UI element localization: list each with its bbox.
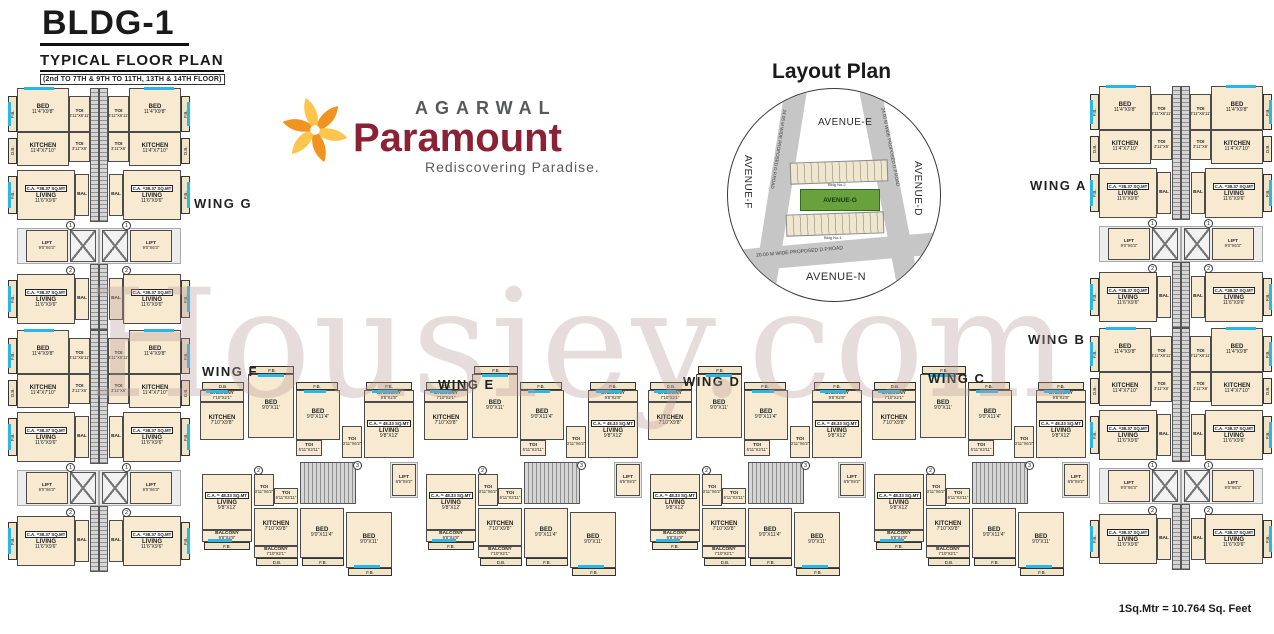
duct-strip: F.B. [1020, 568, 1064, 576]
room-bed: BED9'0"X11'4" [972, 508, 1016, 558]
window-mark [976, 390, 998, 393]
room-lift: LIFT9'0"X6'3" [1108, 228, 1150, 260]
room-living: C.A. =38.37 SQ.MTLIVING11'6"X9'6" [1205, 272, 1263, 322]
room-toi: TOI6'11"X3'11" [274, 488, 298, 504]
flat-number: 1 [122, 463, 131, 472]
core-stairh [90, 506, 99, 572]
room-living: C.A. = 48.33 SQ.MTLIVING9'8"X12' [1036, 402, 1086, 458]
window-mark [187, 344, 190, 368]
core-stairh [99, 264, 108, 330]
flat-number: 2 [702, 466, 711, 475]
flat-number: 1 [122, 221, 131, 230]
room-bal: BAL [75, 416, 89, 458]
room-toi: TOI3'11"X6'2" [478, 474, 498, 506]
duct-strip: F.B. [296, 382, 338, 390]
layout-plan-title: Layout Plan [772, 60, 891, 84]
window-mark [1090, 422, 1093, 448]
room-kitchen: KITCHEN7'10"X9'8" [872, 402, 916, 440]
duct-strip: D.B. [1090, 378, 1099, 404]
duct-strip: F.B. [744, 382, 786, 390]
flat-number: 3 [1025, 461, 1034, 470]
flat-number: 3 [801, 461, 810, 470]
swirl-logo-icon [283, 98, 347, 167]
duct-strip: F.B. [590, 382, 636, 390]
room-kitchen: KITCHEN7'10"X9'8" [254, 508, 298, 546]
room-living: C.A. =38.37 SQ.MTLIVING11'6"X9'6" [17, 274, 75, 324]
room-bed: BED9'0"X11' [1018, 512, 1064, 568]
room-bed: BED9'0"X11' [248, 374, 294, 438]
window-mark [1026, 565, 1052, 568]
room-lift: LIFT9'0"X6'3" [1108, 470, 1150, 502]
room-toi: TOI3'11"X6' [69, 374, 90, 404]
room-toi: TOI6'11"X3'11" [968, 440, 994, 456]
room-bed: BED9'0"X11'4" [744, 390, 788, 440]
room-kitchen: KITCHEN11'4"X7'10" [129, 374, 181, 408]
room-bed: BED11'4"X9'8" [1211, 86, 1263, 130]
wing-label-wing-c: WING C [928, 371, 985, 386]
room-lift: LIFT6'5"X9'2" [1064, 464, 1088, 496]
room-kitchen: KITCHEN11'4"X7'10" [1211, 130, 1263, 164]
flat-number: 1 [1148, 219, 1157, 228]
room-living: C.A. =38.37 SQ.MTLIVING11'6"X9'6" [123, 274, 181, 324]
room-living: C.A. =38.37 SQ.MTLIVING11'6"X9'6" [17, 170, 75, 220]
window-mark [1269, 422, 1272, 448]
window-mark [24, 87, 54, 90]
window-mark [596, 390, 622, 393]
room-toi: TOI3'11"X6'11" [69, 96, 90, 132]
room-living: C.A. = 48.33 SQ.MTLIVING9'8"X12' [588, 402, 638, 458]
room-bal: BAL [1191, 276, 1205, 318]
core-stairv [748, 462, 804, 504]
room-toi: TOI3'11"X6'11" [1151, 336, 1172, 372]
flat-number: 2 [66, 508, 75, 517]
room-kitchen: KITCHEN7'10"X9'8" [200, 402, 244, 440]
duct-strip: D.B. [1090, 136, 1099, 162]
window-mark [1090, 284, 1093, 310]
window-mark [24, 329, 54, 332]
room-bed: BED11'4"X9'8" [1099, 328, 1151, 372]
room-bal: BAL [109, 416, 123, 458]
flat-number: 1 [66, 463, 75, 472]
room-bal: BAL [109, 278, 123, 320]
window-mark [304, 390, 326, 393]
window-mark [1269, 526, 1272, 552]
room-lift: LIFT9'0"X6'3" [1212, 228, 1254, 260]
room-balcony: BALCONY7'10"X2'1" [254, 546, 298, 558]
room-bed: BED9'0"X11' [794, 512, 840, 568]
window-mark [878, 390, 900, 393]
brand-product: Paramount [353, 119, 600, 157]
duct-strip: F.B. [474, 366, 518, 374]
window-mark [8, 424, 11, 450]
duct-strip: F.B. [974, 558, 1016, 566]
room-bed: BED9'0"X11'4" [300, 508, 344, 558]
room-bal: BAL [1191, 518, 1205, 560]
room-toi: TOI6'11"X3'11" [520, 440, 546, 456]
room-kitchen: KITCHEN11'4"X7'10" [17, 374, 69, 408]
room-living: C.A. =38.37 SQ.MTLIVING11'6"X9'6" [1099, 272, 1157, 322]
flat-number: 1 [1148, 461, 1157, 470]
flat-number: 2 [122, 508, 131, 517]
room-bal: BAL [1157, 276, 1171, 318]
window-mark [654, 390, 676, 393]
room-living: C.A. =38.37 SQ.MTLIVING11'6"X9'6" [123, 516, 181, 566]
flat-number: 3 [353, 461, 362, 470]
room-toi: TOI6'11"X3'11" [744, 440, 770, 456]
room-bed: BED11'4"X9'8" [129, 88, 181, 132]
room-kitchen: KITCHEN11'4"X7'10" [129, 132, 181, 166]
core-stairh [90, 88, 99, 222]
scale-note: 1Sq.Mtr = 10.764 Sq. Feet [1100, 603, 1270, 615]
room-toi: TOI3'11"X6'11" [108, 338, 129, 374]
window-mark [1226, 85, 1256, 88]
flat-number: 1 [66, 221, 75, 230]
wing-label-wing-d: WING D [683, 374, 740, 389]
site-plot-label: AVENUE-G [823, 197, 857, 204]
duct-strip: F.B. [572, 568, 616, 576]
window-mark [8, 528, 11, 554]
window-mark [1090, 180, 1093, 206]
duct-strip: F.B. [520, 382, 562, 390]
room-kitchen: KITCHEN7'10"X9'8" [926, 508, 970, 546]
duct-strip: F.B. [302, 558, 344, 566]
flat-number: 2 [122, 266, 131, 275]
core-stairh [1172, 262, 1181, 328]
window-mark [187, 286, 190, 312]
duct-strip: F.B. [348, 568, 392, 576]
layout-bldg-2 [790, 159, 889, 184]
core-stairh [90, 330, 99, 464]
window-mark [1044, 390, 1070, 393]
site-plot: AVENUE-G [800, 189, 880, 211]
room-bed: BED9'0"X11'4" [968, 390, 1012, 440]
window-mark [1269, 180, 1272, 206]
duct-strip: F.B. [428, 542, 474, 550]
window-mark [1090, 100, 1093, 124]
room-balcony: BALCONY7'10"X2'1" [926, 546, 970, 558]
room-living: C.A. =38.37 SQ.MTLIVING11'6"X9'6" [1099, 514, 1157, 564]
room-kitchen: KITCHEN11'4"X7'10" [17, 132, 69, 166]
room-kitchen: KITCHEN7'10"X9'8" [478, 508, 522, 546]
room-toi: TOI6'11"X3'11" [296, 440, 322, 456]
layout-bldg-1 [786, 211, 885, 236]
room-living: C.A. =38.37 SQ.MTLIVING11'6"X9'6" [123, 412, 181, 462]
duct-strip: F.B. [876, 542, 922, 550]
room-living: C.A. = 48.33 SQ.MTLIVING9'8"X12' [650, 474, 700, 530]
core-xbox [102, 230, 128, 262]
room-toi: TOI3'11"X6'2" [342, 426, 362, 458]
duct-strip: F.B. [750, 558, 792, 566]
room-bed: BED9'0"X11'4" [748, 508, 792, 558]
window-mark [8, 344, 11, 368]
core-stairh [1172, 86, 1181, 220]
duct-strip: F.B. [204, 542, 250, 550]
core-xbox [1184, 470, 1210, 502]
window-mark [1226, 327, 1256, 330]
duct-strip: F.B. [526, 558, 568, 566]
window-mark [206, 390, 228, 393]
room-toi: TOI6'11"X3'11" [946, 488, 970, 504]
core-xbox [1152, 470, 1178, 502]
wing-label-wing-g: WING G [194, 196, 252, 211]
room-toi: TOI6'11"X3'11" [722, 488, 746, 504]
room-living: C.A. = 48.33 SQ.MTLIVING9'8"X12' [426, 474, 476, 530]
room-toi: TOI3'11"X6' [69, 132, 90, 162]
core-stairh [99, 88, 108, 222]
window-mark [208, 539, 232, 542]
room-lift: LIFT6'5"X9'2" [616, 464, 640, 496]
window-mark [8, 102, 11, 126]
floor-plan: F.B.D.B.F.B.F.B.BED11'4"X9'8"TOI3'11"X6'… [0, 0, 1274, 634]
window-mark [1269, 342, 1272, 366]
room-toi: TOI3'11"X6'2" [254, 474, 274, 506]
room-toi: TOI3'11"X6' [1151, 372, 1172, 402]
room-bal: BAL [75, 174, 89, 216]
room-living: C.A. = 48.33 SQ.MTLIVING9'8"X12' [364, 402, 414, 458]
layout-plan-map: 24.05 M WIDE PROPOSED D.P.ROAD 24.00 M W… [727, 88, 941, 302]
room-lift: LIFT6'5"X9'2" [392, 464, 416, 496]
avenue-f-label: AVENUE-F [742, 155, 753, 209]
window-mark [187, 424, 190, 450]
core-stairh [1181, 262, 1190, 328]
avenue-n-label: AVENUE-N [806, 271, 866, 283]
wing-label-wing-b: WING B [1028, 332, 1085, 347]
room-bal: BAL [1191, 414, 1205, 456]
room-lift: LIFT9'0"X6'3" [26, 230, 68, 262]
flat-number: 2 [66, 266, 75, 275]
duct-strip: D.B. [181, 380, 190, 406]
core-xbox [102, 472, 128, 504]
brand-tagline: Rediscovering Paradise. [425, 159, 600, 175]
room-toi: TOI3'11"X6' [1190, 130, 1211, 160]
window-mark [8, 286, 11, 312]
room-toi: TOI3'11"X6' [1190, 372, 1211, 402]
room-living: C.A. =38.37 SQ.MTLIVING11'6"X9'6" [1099, 168, 1157, 218]
duct-strip: D.B. [202, 382, 244, 390]
room-kitchen: KITCHEN7'10"X9'8" [702, 508, 746, 546]
room-kitchen: KITCHEN11'4"X7'10" [1211, 372, 1263, 406]
duct-strip: F.B. [652, 542, 698, 550]
flat-number: 2 [1148, 264, 1157, 273]
room-toi: TOI3'11"X6'11" [108, 96, 129, 132]
room-toi: TOI3'11"X6'11" [1190, 94, 1211, 130]
room-toi: TOI3'11"X6'2" [702, 474, 722, 506]
window-mark [752, 390, 774, 393]
room-bed: BED9'0"X11'4" [524, 508, 568, 558]
core-stairh [1181, 504, 1190, 570]
window-mark [187, 102, 190, 126]
layout-bldg-2-label: Bldg No.2 [828, 182, 846, 187]
core-xbox [1184, 228, 1210, 260]
flat-number: 2 [254, 466, 263, 475]
core-stairh [90, 264, 99, 330]
room-bed: BED9'0"X11'4" [520, 390, 564, 440]
flat-number: 1 [1204, 461, 1213, 470]
room-bed: BED11'4"X9'8" [17, 88, 69, 132]
room-bed: BED9'0"X11' [570, 512, 616, 568]
duct-strip: D.B. [181, 138, 190, 164]
avenue-e-label: AVENUE-E [818, 117, 872, 128]
window-mark [187, 528, 190, 554]
floors-note: (2nd TO 7TH & 9TH TO 11TH, 13TH & 14TH F… [40, 74, 225, 85]
room-kitchen: KITCHEN11'4"X7'10" [1099, 130, 1151, 164]
layout-bldg-1-label: Bldg No.1 [824, 235, 842, 240]
window-mark [1106, 85, 1136, 88]
flat-number: 2 [1148, 506, 1157, 515]
duct-strip: D.B. [1263, 378, 1272, 404]
room-living: C.A. =38.37 SQ.MTLIVING11'6"X9'6" [1099, 410, 1157, 460]
window-mark [578, 565, 604, 568]
duct-strip: F.B. [1038, 382, 1084, 390]
room-bed: BED9'0"X11' [346, 512, 392, 568]
window-mark [880, 539, 904, 542]
duct-strip: D.B. [1263, 136, 1272, 162]
room-living: C.A. =38.37 SQ.MTLIVING11'6"X9'6" [1205, 410, 1263, 460]
room-lift: LIFT6'5"X9'2" [840, 464, 864, 496]
core-stairh [99, 330, 108, 464]
room-toi: TOI3'11"X6'2" [926, 474, 946, 506]
avenue-d-label: AVENUE-D [912, 161, 923, 216]
core-stairh [1181, 86, 1190, 220]
window-mark [820, 390, 846, 393]
duct-strip: D.B. [8, 380, 17, 406]
core-stairh [1172, 504, 1181, 570]
duct-strip: D.B. [704, 558, 746, 566]
room-lift: LIFT9'0"X6'3" [26, 472, 68, 504]
core-stairv [972, 462, 1028, 504]
plan-title: TYPICAL FLOOR PLAN [40, 52, 224, 72]
duct-strip: F.B. [796, 568, 840, 576]
room-lift: LIFT9'0"X6'3" [130, 472, 172, 504]
room-bal: BAL [109, 520, 123, 562]
room-bal: BAL [75, 520, 89, 562]
room-bal: BAL [1157, 172, 1171, 214]
room-bed: BED11'4"X9'8" [1099, 86, 1151, 130]
wing-label-wing-f: WING F [202, 364, 258, 379]
room-toi: TOI3'11"X6'2" [566, 426, 586, 458]
room-lift: LIFT9'0"X6'3" [1212, 470, 1254, 502]
core-stairh [1172, 328, 1181, 462]
window-mark [528, 390, 550, 393]
window-mark [8, 182, 11, 208]
room-living: C.A. =38.37 SQ.MTLIVING11'6"X9'6" [1205, 514, 1263, 564]
wing-label-wing-e: WING E [438, 377, 495, 392]
room-bal: BAL [75, 278, 89, 320]
room-bal: BAL [109, 174, 123, 216]
duct-strip: F.B. [366, 382, 412, 390]
room-living: C.A. = 48.33 SQ.MTLIVING9'8"X12' [812, 402, 862, 458]
core-xbox [70, 230, 96, 262]
flat-number: 2 [1204, 264, 1213, 273]
window-mark [656, 539, 680, 542]
core-xbox [1152, 228, 1178, 260]
brand-logo: AGARWAL Paramount Rediscovering Paradise… [283, 98, 600, 175]
window-mark [354, 565, 380, 568]
room-bal: BAL [1191, 172, 1205, 214]
core-stairv [524, 462, 580, 504]
window-mark [432, 539, 456, 542]
room-living: C.A. =38.37 SQ.MTLIVING11'6"X9'6" [17, 412, 75, 462]
window-mark [1106, 327, 1136, 330]
flat-number: 2 [478, 466, 487, 475]
building-title: BLDG-1 [40, 6, 189, 46]
window-mark [1269, 100, 1272, 124]
window-mark [144, 329, 174, 332]
flat-number: 2 [1204, 506, 1213, 515]
core-stairh [99, 506, 108, 572]
room-bal: BAL [1157, 518, 1171, 560]
duct-strip: D.B. [928, 558, 970, 566]
room-bed: BED9'0"X11'4" [296, 390, 340, 440]
room-kitchen: KITCHEN7'10"X9'8" [424, 402, 468, 440]
window-mark [258, 374, 284, 377]
room-living: C.A. =38.37 SQ.MTLIVING11'6"X9'6" [123, 170, 181, 220]
room-living: C.A. = 48.33 SQ.MTLIVING9'8"X12' [202, 474, 252, 530]
duct-strip: D.B. [480, 558, 522, 566]
wing-label-wing-a: WING A [1030, 178, 1087, 193]
core-stairv [300, 462, 356, 504]
room-balcony: BALCONY7'10"X2'1" [702, 546, 746, 558]
duct-strip: F.B. [698, 366, 742, 374]
room-bed: BED11'4"X9'8" [129, 330, 181, 374]
room-toi: TOI3'11"X6'11" [1190, 336, 1211, 372]
room-toi: TOI3'11"X6'11" [1151, 94, 1172, 130]
room-toi: TOI3'11"X6'11" [69, 338, 90, 374]
window-mark [802, 565, 828, 568]
room-toi: TOI6'11"X3'11" [498, 488, 522, 504]
window-mark [1090, 526, 1093, 552]
room-toi: TOI3'11"X6'2" [790, 426, 810, 458]
room-bed: BED11'4"X9'8" [1211, 328, 1263, 372]
duct-strip: D.B. [8, 138, 17, 164]
duct-strip: D.B. [874, 382, 916, 390]
room-balcony: BALCONY7'10"X2'1" [478, 546, 522, 558]
room-bed: BED11'4"X9'8" [17, 330, 69, 374]
room-toi: TOI3'11"X6' [108, 132, 129, 162]
room-bal: BAL [1157, 414, 1171, 456]
flat-number: 1 [1204, 219, 1213, 228]
room-toi: TOI3'11"X6' [1151, 130, 1172, 160]
window-mark [1090, 342, 1093, 366]
duct-strip: F.B. [814, 382, 860, 390]
room-toi: TOI3'11"X6' [108, 374, 129, 404]
window-mark [144, 87, 174, 90]
room-living: C.A. =38.37 SQ.MTLIVING11'6"X9'6" [1205, 168, 1263, 218]
duct-strip: D.B. [256, 558, 298, 566]
flat-number: 2 [926, 466, 935, 475]
room-lift: LIFT9'0"X6'3" [130, 230, 172, 262]
room-kitchen: KITCHEN11'4"X7'10" [1099, 372, 1151, 406]
window-mark [372, 390, 398, 393]
title-block: BLDG-1 TYPICAL FLOOR PLAN (2nd TO 7TH & … [40, 6, 225, 85]
room-living: C.A. =38.37 SQ.MTLIVING11'6"X9'6" [17, 516, 75, 566]
core-stairh [1181, 328, 1190, 462]
window-mark [1269, 284, 1272, 310]
core-xbox [70, 472, 96, 504]
flat-number: 3 [577, 461, 586, 470]
room-toi: TOI3'11"X6'2" [1014, 426, 1034, 458]
room-living: C.A. = 48.33 SQ.MTLIVING9'8"X12' [874, 474, 924, 530]
room-kitchen: KITCHEN7'10"X9'8" [648, 402, 692, 440]
window-mark [187, 182, 190, 208]
